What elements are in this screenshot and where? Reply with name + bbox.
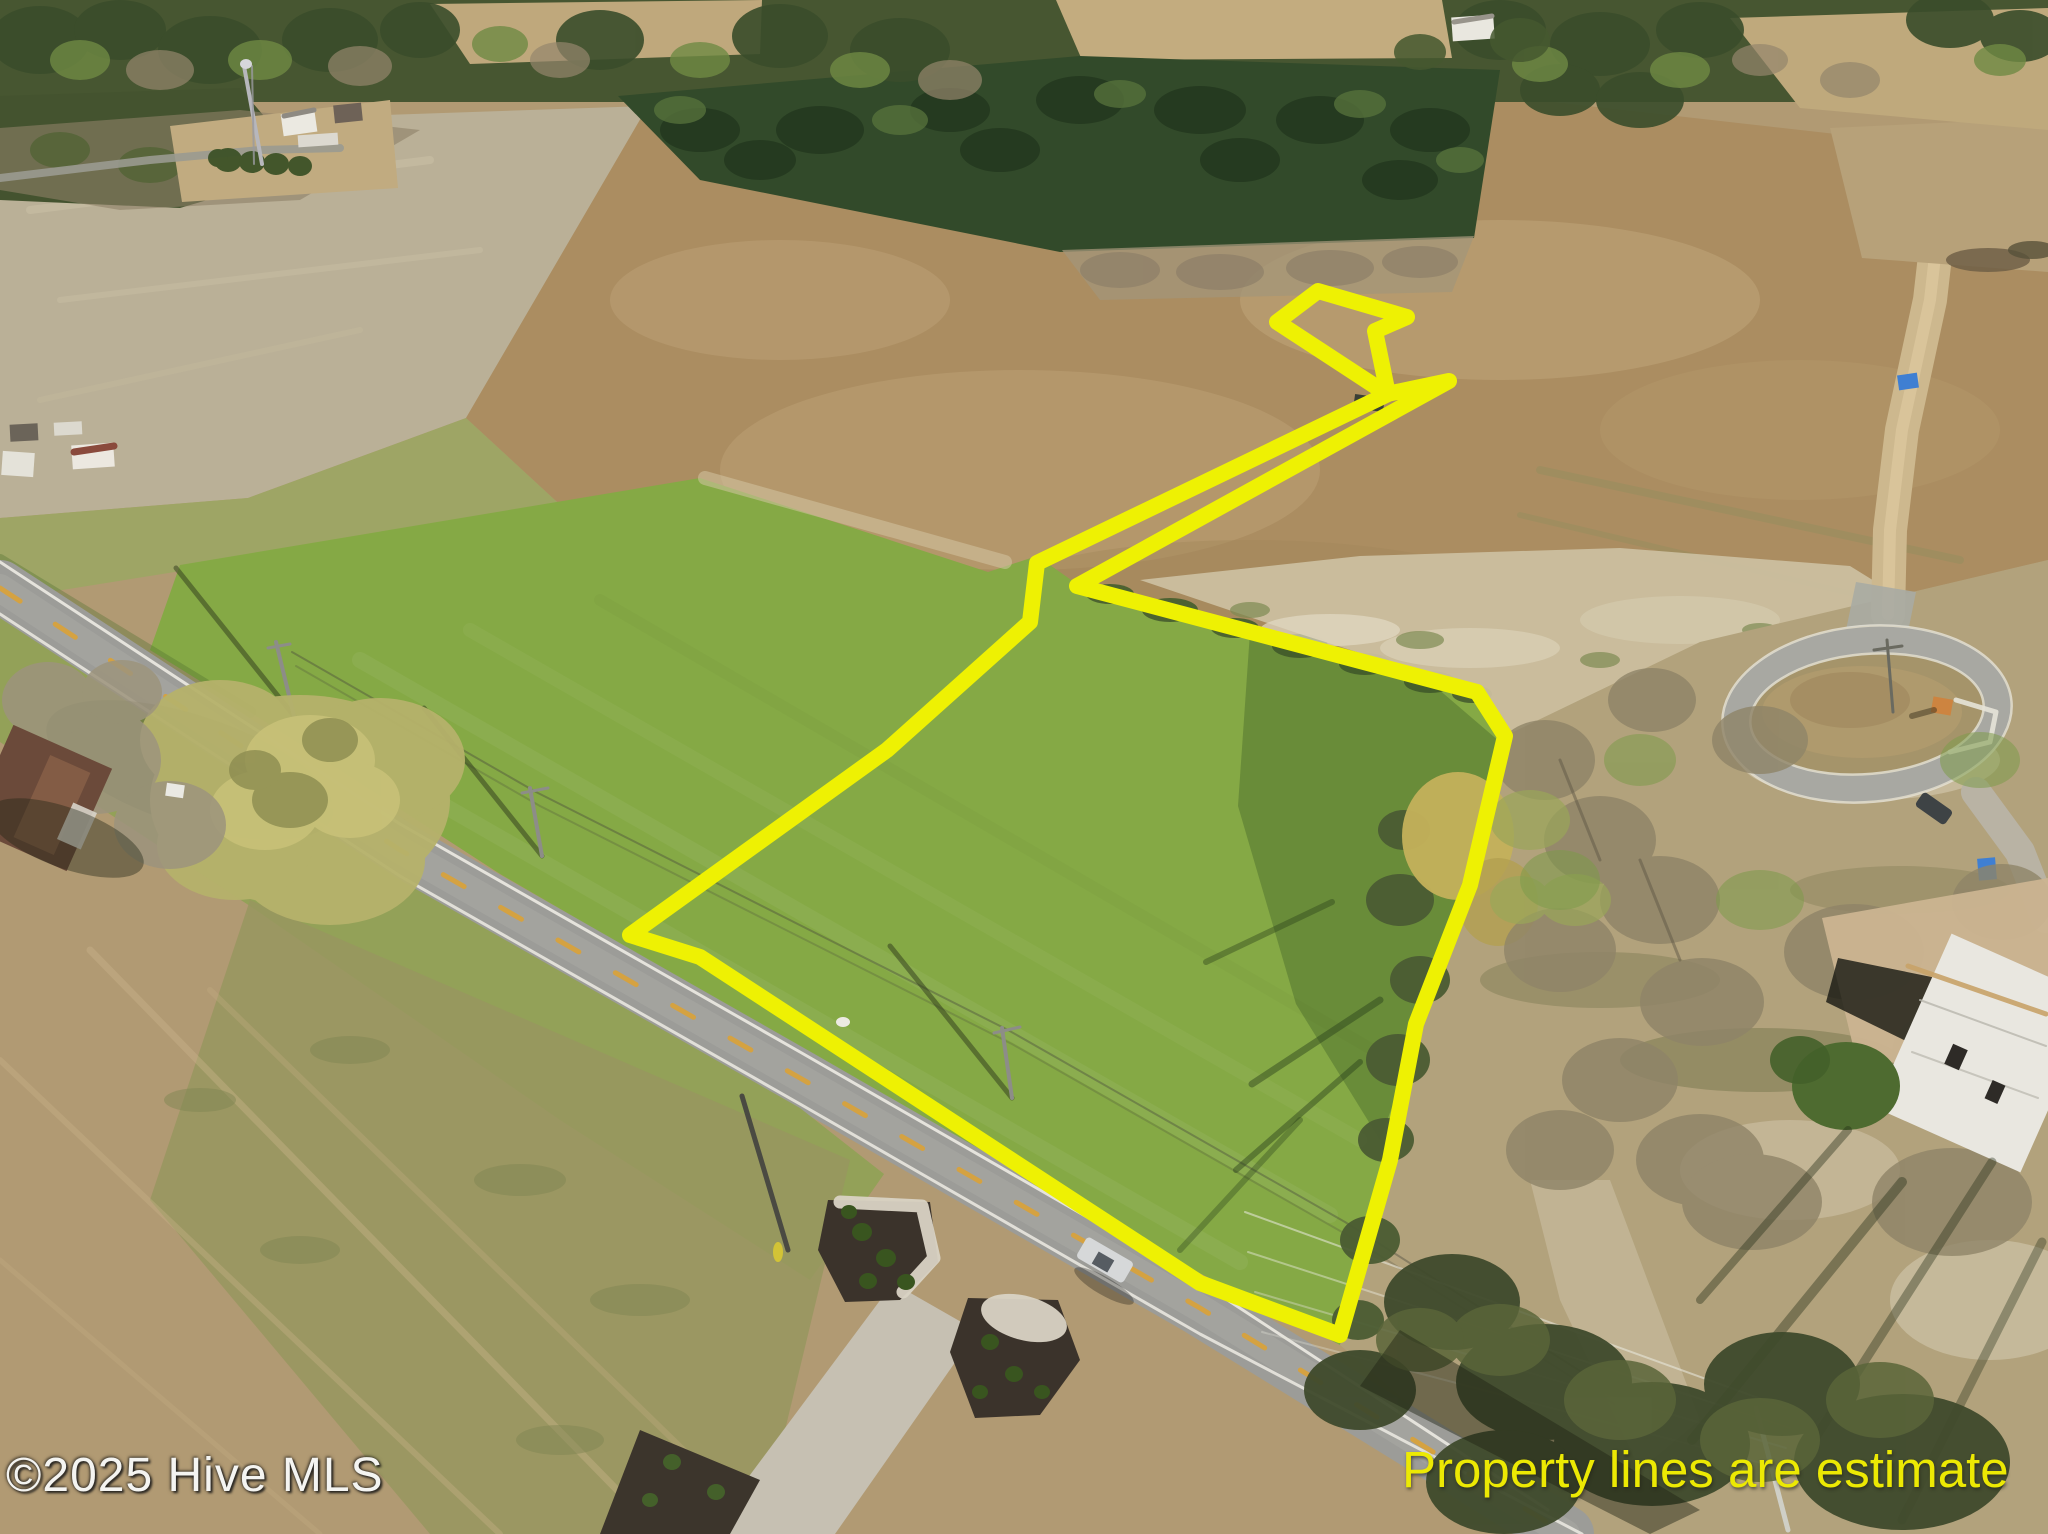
mls-copyright-watermark: ©2025 Hive MLS — [6, 1448, 384, 1503]
property-lines-disclaimer: Property lines are estimate — [1402, 1440, 2009, 1499]
aerial-scene — [0, 0, 2048, 1534]
aerial-photo: ©2025 Hive MLS Property lines are estima… — [0, 0, 2048, 1534]
